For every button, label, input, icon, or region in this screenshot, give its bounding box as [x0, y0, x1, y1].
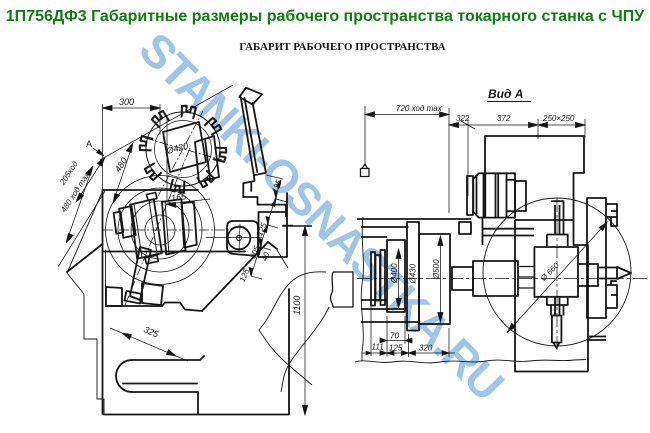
- svg-text:322: 322: [456, 114, 470, 123]
- svg-text:480: 480: [113, 156, 130, 174]
- svg-text:111: 111: [372, 343, 384, 352]
- svg-text:Ø400: Ø400: [390, 263, 399, 284]
- svg-text:125: 125: [389, 344, 403, 353]
- svg-text:165: 165: [170, 191, 187, 203]
- svg-text:1100: 1100: [292, 296, 302, 315]
- svg-text:Вид А: Вид А: [488, 87, 523, 101]
- svg-text:325: 325: [142, 324, 161, 339]
- svg-text:Ø500: Ø500: [432, 259, 441, 280]
- svg-text:720 ход mах: 720 ход mах: [396, 104, 443, 113]
- svg-text:300: 300: [119, 97, 134, 107]
- svg-text:250×250: 250×250: [542, 114, 575, 123]
- svg-text:320: 320: [419, 344, 433, 353]
- svg-text:STANKI-OSNASTKA.RU: STANKI-OSNASTKA.RU: [129, 22, 513, 409]
- svg-text:Ø420: Ø420: [164, 141, 189, 157]
- svg-text:A: A: [86, 139, 92, 149]
- svg-text:372: 372: [497, 114, 511, 123]
- svg-text:70: 70: [390, 332, 399, 341]
- svg-text:Ø 660: Ø 660: [538, 261, 561, 284]
- svg-text:Ø430: Ø430: [409, 263, 418, 284]
- svg-text:40: 40: [260, 250, 272, 262]
